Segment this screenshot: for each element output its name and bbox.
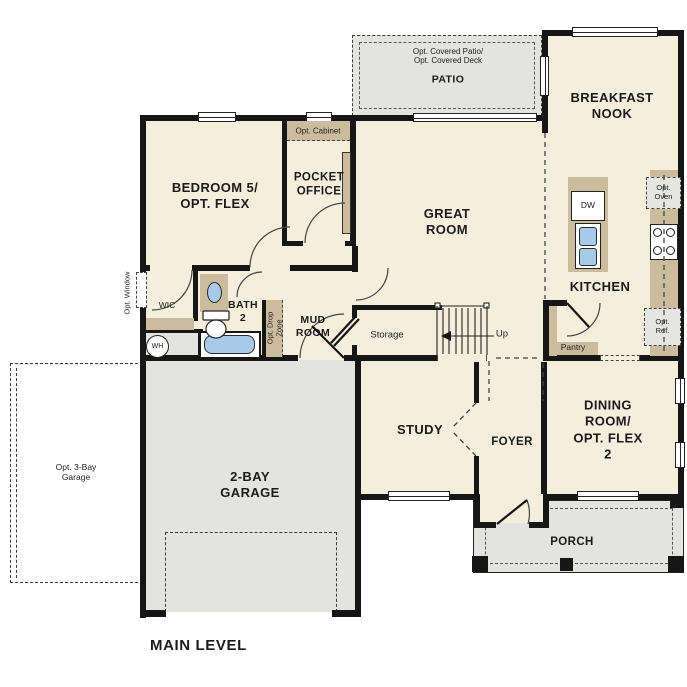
- porch-label: PORCH: [550, 535, 594, 549]
- opt-drop-zone-label: Opt. Drop Zone: [266, 312, 283, 345]
- porch-post: [560, 558, 573, 571]
- opening-under-stairs: [437, 355, 487, 361]
- porch-post: [668, 556, 684, 572]
- garage-door-dashed: [165, 532, 337, 612]
- exterior-wall-right: [678, 30, 684, 500]
- nook-window: [572, 27, 658, 37]
- mud-room-label: MUD ROOM: [296, 314, 330, 340]
- wall-storage-left-b: [352, 345, 357, 358]
- wall-foyer-dining: [541, 362, 547, 494]
- wall-office-bottom-a: [287, 241, 303, 246]
- dining-side-window: [675, 442, 685, 468]
- burner-icon: [666, 246, 675, 255]
- opt-ref-box: Opt. Ref.: [644, 308, 681, 346]
- wall-hall-bottom: [290, 265, 356, 271]
- kitchen-label: KITCHEN: [570, 279, 631, 295]
- bedroom5-label: BEDROOM 5/ OPT. FLEX: [172, 180, 258, 213]
- bedroom-window: [198, 112, 236, 122]
- plan-title: MAIN LEVEL: [150, 637, 247, 654]
- wic-label: WIC: [159, 301, 176, 311]
- wall-wic-bath: [193, 268, 198, 321]
- dw-label: DW: [581, 201, 595, 211]
- wall-study-foyer-a: [474, 362, 479, 403]
- opt-window-glyph: [136, 272, 147, 308]
- dining-label: DINING ROOM/ OPT. FLEX 2: [569, 398, 648, 463]
- garage-wall-bottom-right: [332, 610, 361, 617]
- wall-great-left-stub: [352, 246, 358, 272]
- wic-shelf: [146, 318, 194, 330]
- kitchen-sink-basin: [579, 227, 597, 246]
- bath2-label: BATH 2: [228, 299, 258, 325]
- floor-plan: Opt. Oven Opt. Ref. WH: [0, 0, 687, 687]
- wall-storage-bottom: [358, 355, 437, 361]
- patio-opt-label: Opt. Covered Patio/ Opt. Covered Deck: [413, 47, 483, 65]
- wall-storage-top: [352, 305, 442, 310]
- foyer-label: FOYER: [491, 435, 533, 449]
- dining-window: [577, 491, 639, 501]
- foyer-bump-floor: [480, 498, 543, 523]
- opt-cabinet-label: Opt. Cabinet: [296, 126, 341, 135]
- patio-label: PATIO: [432, 73, 465, 86]
- opt-garage-inner-dashed: [16, 368, 18, 578]
- burner-icon: [653, 246, 662, 255]
- great-room-label: GREAT ROOM: [424, 206, 471, 239]
- wall-study-foyer-b: [474, 456, 479, 494]
- burner-icon: [653, 228, 662, 237]
- opt-window-label: Opt. Window: [124, 272, 133, 315]
- nook-patio-door: [540, 56, 549, 96]
- storage-label: Storage: [370, 331, 403, 342]
- wall-bedroom-bottom-a: [140, 265, 150, 271]
- opt-garage-label: Opt. 3-Bay Garage: [56, 463, 97, 483]
- bathtub: [204, 335, 255, 354]
- opt-oven-box: Opt. Oven: [646, 177, 681, 209]
- garage-label: 2-BAY GARAGE: [220, 469, 279, 502]
- up-label: Up: [496, 330, 508, 341]
- garage-wall-bottom-left: [140, 610, 166, 617]
- kitchen-dining-opening: [600, 355, 640, 361]
- wall-bedroom-bottom-b: [192, 265, 250, 271]
- kitchen-sink-basin: [579, 248, 597, 266]
- exterior-wall-left: [140, 115, 146, 618]
- study-window: [388, 491, 450, 501]
- patio-slider-door: [413, 113, 537, 122]
- pantry-label: Pantry: [561, 343, 586, 353]
- garage-wall-right: [355, 358, 361, 616]
- foyer-bump-wall-bottom-b: [529, 522, 549, 528]
- porch-post: [472, 556, 488, 572]
- bath-sink: [207, 282, 222, 303]
- water-heater: WH: [146, 335, 169, 358]
- wall-great-kitchen-stub: [542, 115, 548, 133]
- porch-post: [670, 500, 684, 508]
- burner-icon: [666, 228, 675, 237]
- wall-storage-left-a: [352, 305, 357, 318]
- breakfast-nook-label: BREAKFAST NOOK: [570, 90, 653, 123]
- study-label: STUDY: [397, 422, 443, 438]
- foyer-bump-wall-bottom-a: [474, 522, 496, 528]
- pocket-office-label: POCKET OFFICE: [294, 171, 344, 200]
- dining-side-window: [675, 378, 685, 404]
